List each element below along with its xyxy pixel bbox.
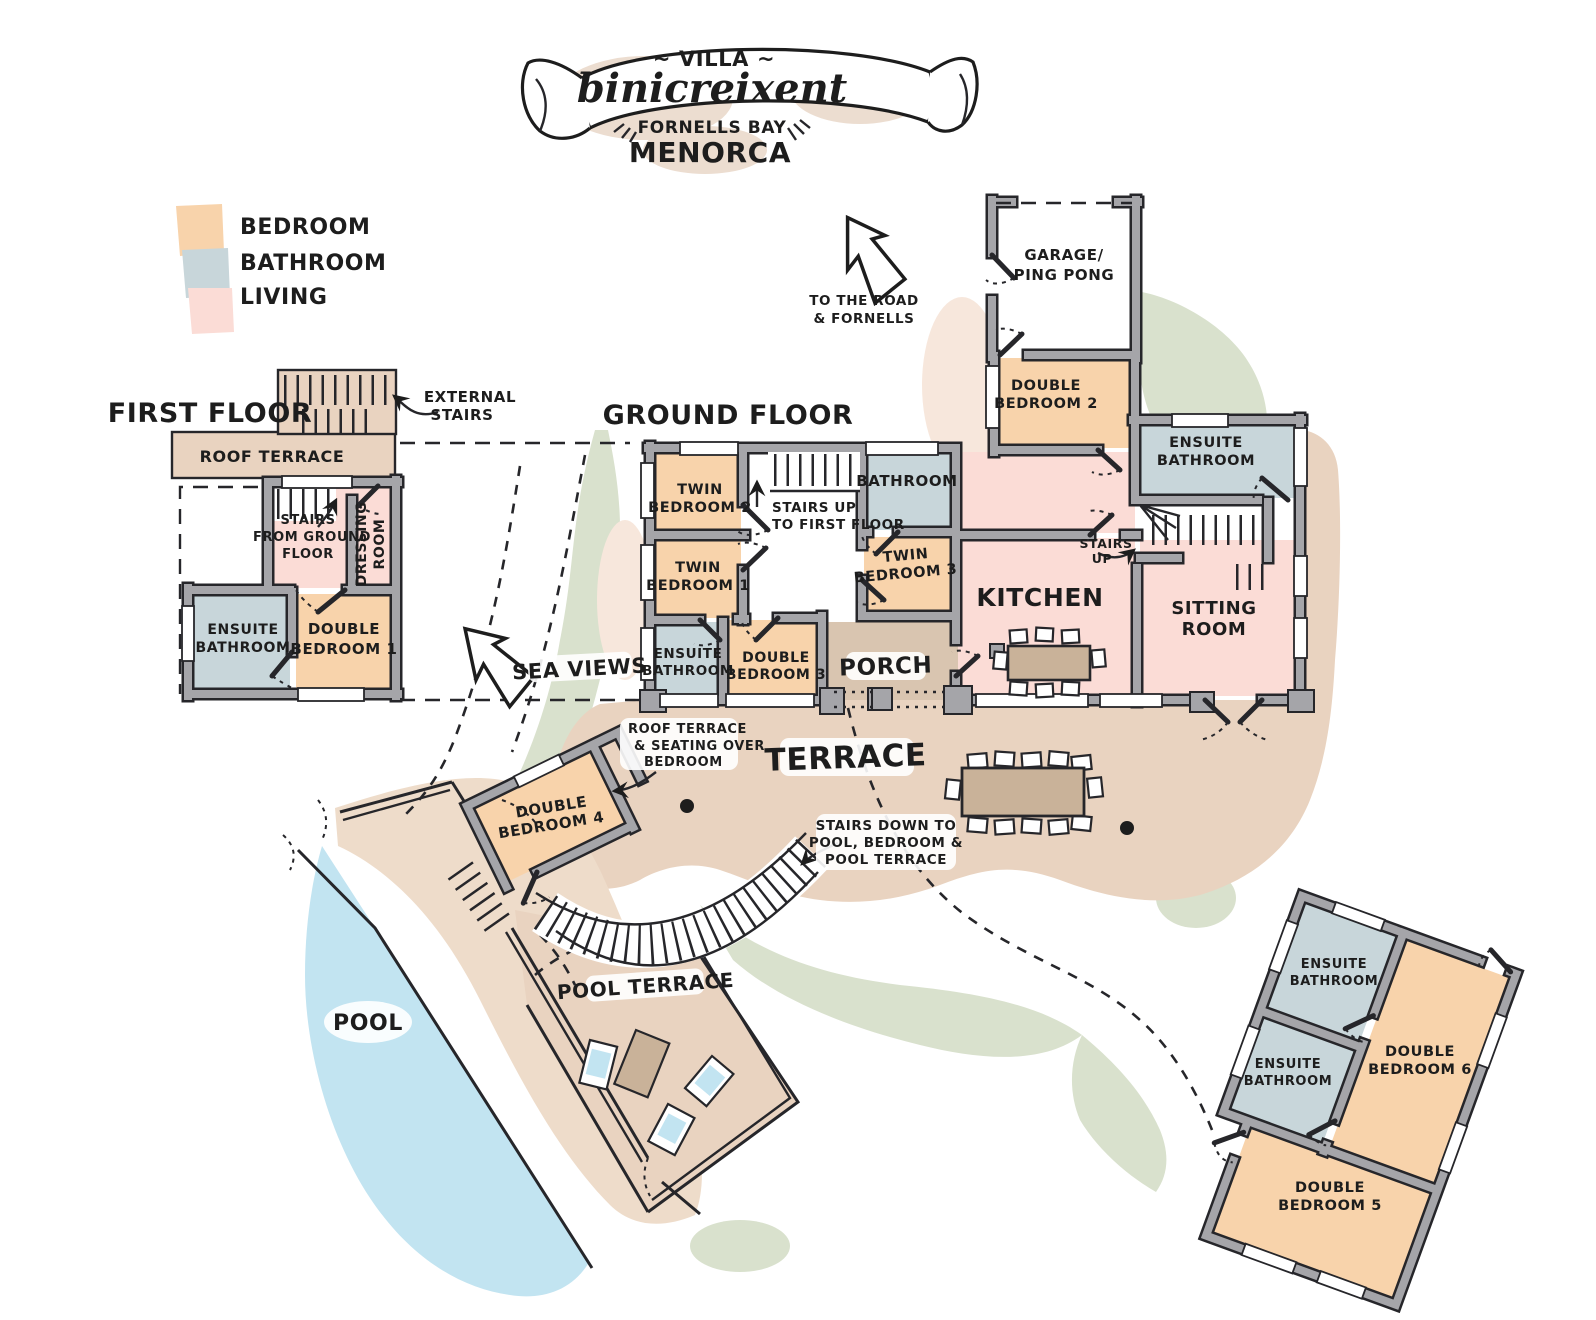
external-stairs-label-1: EXTERNAL (424, 388, 516, 406)
roof-terrace-label: ROOF TERRACE (200, 447, 345, 466)
title-bay: FORNELLS BAY (638, 118, 787, 138)
ensuite-left-1: ENSUITE (654, 646, 723, 662)
legend-swatch-living (188, 288, 234, 334)
ensuite-right-2: BATHROOM (1157, 453, 1255, 469)
twin-bedroom-1-2: BEDROOM 1 (646, 578, 750, 594)
double-bedroom-2-2: BEDROOM 2 (994, 396, 1098, 412)
roof-terrace-note-1: ROOF TERRACE (628, 722, 747, 737)
legend-label-bedroom: BEDROOM (240, 215, 371, 240)
floorplan-svg: FIRST FLOOR EXTERNAL STAIRS ROOF TERRACE… (0, 0, 1596, 1320)
title-name: binicreixent (577, 65, 848, 112)
stairs-up-note-2: TO FIRST FLOOR (772, 517, 905, 533)
pool-label: POOL (333, 1011, 403, 1036)
terrace-label: TERRACE (764, 737, 927, 779)
gate-arc-a (318, 800, 326, 840)
legend-label-living: LIVING (240, 285, 328, 310)
annex-ensuite-left-2: BATHROOM (1244, 1074, 1333, 1089)
sitting-room-1: SITTING (1171, 598, 1256, 619)
legend-label-bathroom: BATHROOM (240, 251, 387, 276)
annex-ensuite-top-1: ENSUITE (1301, 957, 1367, 972)
stairs-down-2: POOL, BEDROOM & (809, 835, 963, 851)
twin-bedroom-1-1: TWIN (675, 560, 721, 576)
annex-ensuite-top-2: BATHROOM (1290, 974, 1379, 989)
dressing-room-2: ROOM (372, 519, 388, 570)
double-bedroom-6-1: DOUBLE (1385, 1044, 1455, 1060)
tree-right (1120, 821, 1134, 835)
external-stairs-label-2: STAIRS (430, 406, 493, 424)
stairs-down-3: POOL TERRACE (825, 852, 947, 868)
dressing-room-1: DRESSING (354, 502, 370, 587)
double-bedroom-2-1: DOUBLE (1011, 378, 1081, 394)
porch-label: PORCH (839, 652, 933, 681)
twin-bedroom-2-2: BEDROOM 2 (648, 500, 752, 516)
to-road-1: TO THE ROAD (809, 293, 919, 309)
to-road-2: & FORNELLS (813, 311, 914, 327)
gate-arc-b (283, 835, 294, 870)
legend-swatch-bedroom (176, 204, 224, 256)
double-bedroom-1-1: DOUBLE (308, 620, 380, 638)
ff-window-top (282, 476, 352, 488)
roof-terrace-note-3: BEDROOM (644, 755, 723, 770)
annex-block (1174, 881, 1527, 1313)
ensuite-left-2: BATHROOM (642, 663, 734, 679)
double-bedroom-3-2: BEDROOM 3 (726, 667, 826, 683)
ensuite-right-1: ENSUITE (1169, 435, 1243, 451)
garden-blob-to-annex (1072, 1035, 1166, 1192)
title-banner: ~ VILLA ~ binicreixent FORNELLS BAY MENO… (522, 47, 977, 174)
garage-1: GARAGE/ (1024, 246, 1103, 264)
double-bedroom-1-2: BEDROOM 1 (290, 640, 397, 658)
annex-ensuite-left-1: ENSUITE (1255, 1057, 1321, 1072)
garage-2: PING PONG (1014, 266, 1115, 284)
double-bedroom-5-2: BEDROOM 5 (1278, 1198, 1382, 1214)
sitting-room-2: ROOM (1182, 619, 1247, 640)
stairs-up-2: UP (1092, 551, 1113, 566)
bathroom-label: BATHROOM (856, 472, 957, 490)
double-bedroom-6-2: BEDROOM 6 (1368, 1062, 1472, 1078)
double-bedroom-5-1: DOUBLE (1295, 1180, 1365, 1196)
title-island: MENORCA (629, 136, 791, 169)
tree-left (680, 799, 694, 813)
twin-bedroom-2-1: TWIN (677, 482, 723, 498)
ground-floor-title: GROUND FLOOR (603, 400, 854, 431)
stairs-up-note-1: STAIRS UP (772, 500, 856, 516)
terrace-dining-table (945, 751, 1103, 835)
ff-ensuite-2: BATHROOM (195, 640, 290, 656)
stairs-up-1: STAIRS (1079, 536, 1132, 551)
roof-terrace-note-2: & SEATING OVER (634, 739, 765, 754)
ff-ensuite-1: ENSUITE (207, 622, 278, 638)
garden-blob-pool-terrace-bottom (690, 1220, 790, 1272)
villa-floorplan-illustration: FIRST FLOOR EXTERNAL STAIRS ROOF TERRACE… (0, 0, 1596, 1320)
ff-window-bottom (298, 688, 364, 701)
banner-curl-right (928, 58, 977, 131)
stairs-down-1: STAIRS DOWN TO (816, 818, 957, 834)
ff-window-left (182, 606, 194, 661)
legend: BEDROOM BATHROOM LIVING (176, 204, 387, 334)
double-bedroom-3-1: DOUBLE (742, 650, 810, 666)
kitchen-label: KITCHEN (976, 583, 1103, 612)
first-floor-title: FIRST FLOOR (108, 398, 313, 429)
stairs-from-ground-1: STAIRS (280, 513, 335, 528)
stairs-from-ground-3: FLOOR (282, 547, 334, 562)
